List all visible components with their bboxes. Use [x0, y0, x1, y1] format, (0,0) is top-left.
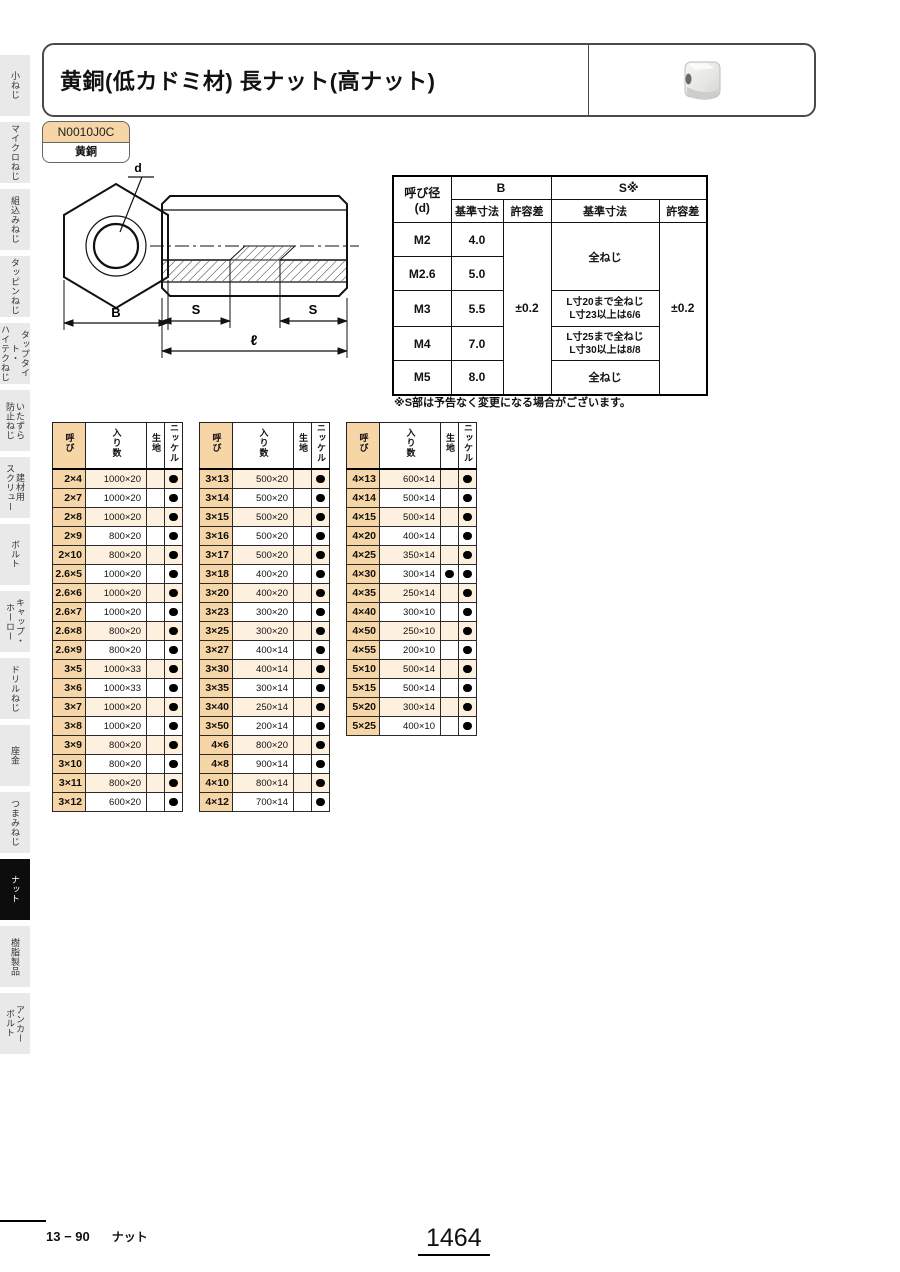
availability-dot [169, 722, 178, 731]
product-row: 3×51000×33 [53, 660, 183, 679]
nickel-cell [165, 546, 183, 565]
qty-cell: 800×20 [86, 546, 147, 565]
qty-cell: 1000×20 [86, 489, 147, 508]
size-cell: 4×30 [347, 565, 380, 584]
plain-cell [441, 679, 459, 698]
sidebar-tab-label: ドリルねじ [10, 665, 20, 713]
plain-cell [147, 698, 165, 717]
availability-dot [169, 627, 178, 636]
size-cell: 2×7 [53, 489, 86, 508]
availability-dot [316, 589, 325, 598]
qty-cell: 400×14 [233, 660, 294, 679]
size-cell: 3×35 [200, 679, 233, 698]
col-header-qty: 入り数 [233, 423, 294, 470]
qty-cell: 200×10 [380, 641, 441, 660]
size-cell: 3×9 [53, 736, 86, 755]
plain-cell [147, 469, 165, 489]
size-cell: 3×30 [200, 660, 233, 679]
sidebar-tab-label: 小ねじ [10, 71, 20, 100]
product-row: 3×30400×14 [200, 660, 330, 679]
qty-cell: 350×14 [380, 546, 441, 565]
dim-label-s-right: S [309, 302, 318, 317]
spec-size-m5: M5 [393, 361, 451, 395]
sidebar-tab-active: ナット [0, 859, 30, 920]
size-cell: 4×13 [347, 469, 380, 489]
nickel-cell [312, 679, 330, 698]
dim-label-d: d [134, 161, 141, 175]
size-cell: 3×23 [200, 603, 233, 622]
product-row: 3×10800×20 [53, 755, 183, 774]
product-row: 2×81000×20 [53, 508, 183, 527]
plain-cell [441, 565, 459, 584]
size-cell: 4×8 [200, 755, 233, 774]
sidebar-tab-label: アンカー ボルト [5, 1005, 25, 1043]
product-code-badge: N0010J0C 黄銅 [42, 121, 130, 163]
plain-cell [441, 660, 459, 679]
nickel-cell [165, 698, 183, 717]
availability-dot [316, 532, 325, 541]
size-cell: 3×11 [53, 774, 86, 793]
size-cell: 3×17 [200, 546, 233, 565]
sidebar-tab-label: キャップ・ ホーロー [5, 598, 25, 646]
product-row: 4×8900×14 [200, 755, 330, 774]
product-row: 3×81000×20 [53, 717, 183, 736]
qty-cell: 1000×33 [86, 679, 147, 698]
sidebar-tab-label: つまみねじ [10, 799, 20, 847]
nickel-cell [165, 584, 183, 603]
col-header-size: 呼び [347, 423, 380, 470]
size-cell: 4×6 [200, 736, 233, 755]
sidebar-tab: マイクロねじ [0, 122, 30, 183]
product-row: 4×50250×10 [347, 622, 477, 641]
product-row: 2.6×8800×20 [53, 622, 183, 641]
availability-dot [316, 646, 325, 655]
nickel-cell [459, 660, 477, 679]
qty-cell: 800×20 [86, 641, 147, 660]
plain-cell [294, 469, 312, 489]
availability-dot [463, 665, 472, 674]
col-header-nickel: ニッケル [312, 423, 330, 470]
spec-s-m5: 全ねじ [551, 361, 659, 395]
availability-dot [169, 513, 178, 522]
qty-cell: 800×20 [233, 736, 294, 755]
size-cell: 3×13 [200, 469, 233, 489]
qty-cell: 1000×20 [86, 565, 147, 584]
availability-dot [463, 627, 472, 636]
availability-dot [316, 684, 325, 693]
footer-section-number: 13 − 90 [46, 1229, 90, 1244]
sidebar-tab: 小ねじ [0, 55, 30, 116]
product-row: 2×10800×20 [53, 546, 183, 565]
page-number: 1464 [418, 1224, 490, 1256]
availability-dot [463, 722, 472, 731]
product-row: 3×20400×20 [200, 584, 330, 603]
qty-cell: 1000×20 [86, 603, 147, 622]
plain-cell [294, 641, 312, 660]
availability-dot [316, 513, 325, 522]
plain-cell [147, 565, 165, 584]
qty-cell: 500×20 [233, 546, 294, 565]
sidebar-tab-label: マイクロねじ [10, 124, 20, 181]
col-header-plain: 生地 [294, 423, 312, 470]
plain-cell [147, 508, 165, 527]
product-row: 3×9800×20 [53, 736, 183, 755]
plain-cell [441, 641, 459, 660]
nickel-cell [165, 717, 183, 736]
nickel-cell [312, 698, 330, 717]
nickel-cell [312, 755, 330, 774]
product-row: 3×27400×14 [200, 641, 330, 660]
product-row: 2×41000×20 [53, 469, 183, 489]
availability-dot [316, 665, 325, 674]
product-row: 4×35250×14 [347, 584, 477, 603]
qty-cell: 1000×20 [86, 717, 147, 736]
sidebar: 小ねじマイクロねじ組込みねじタッピンねじタップタイト・ ハイテクねじいたずら 防… [0, 55, 30, 1060]
spec-header-s: S※ [551, 176, 707, 200]
nickel-cell [459, 622, 477, 641]
availability-dot [463, 570, 472, 579]
availability-dot [169, 779, 178, 788]
product-row: 3×40250×14 [200, 698, 330, 717]
product-row: 5×10500×14 [347, 660, 477, 679]
qty-cell: 600×14 [380, 469, 441, 489]
spec-size-m2: M2 [393, 223, 451, 257]
dim-label-b: B [111, 305, 120, 320]
availability-dot [169, 703, 178, 712]
product-row: 3×23300×20 [200, 603, 330, 622]
plain-cell [441, 717, 459, 736]
size-cell: 3×5 [53, 660, 86, 679]
qty-cell: 300×14 [380, 698, 441, 717]
footer-category: ナット [112, 1230, 148, 1244]
size-cell: 3×8 [53, 717, 86, 736]
availability-dot [316, 760, 325, 769]
size-cell: 3×25 [200, 622, 233, 641]
sidebar-tab-label: 組込みねじ [10, 196, 20, 244]
plain-cell [147, 755, 165, 774]
size-cell: 4×10 [200, 774, 233, 793]
qty-cell: 800×20 [86, 622, 147, 641]
plain-cell [294, 603, 312, 622]
availability-dot [463, 513, 472, 522]
qty-cell: 250×10 [380, 622, 441, 641]
size-cell: 2.6×6 [53, 584, 86, 603]
qty-cell: 300×20 [233, 622, 294, 641]
plain-cell [147, 736, 165, 755]
size-cell: 2.6×9 [53, 641, 86, 660]
availability-dot [169, 589, 178, 598]
nickel-cell [459, 641, 477, 660]
plain-cell [294, 717, 312, 736]
qty-cell: 300×20 [233, 603, 294, 622]
spec-s-m3: L寸20まで全ねじ L寸23以上は6/6 [551, 291, 659, 327]
plain-cell [294, 527, 312, 546]
nickel-cell [312, 641, 330, 660]
nickel-cell [165, 469, 183, 489]
nut-photo [675, 57, 729, 103]
nickel-cell [459, 546, 477, 565]
col-header-nickel: ニッケル [165, 423, 183, 470]
nickel-cell [459, 527, 477, 546]
product-row: 3×71000×20 [53, 698, 183, 717]
header-photo-area [589, 45, 814, 115]
size-cell: 3×15 [200, 508, 233, 527]
availability-dot [169, 665, 178, 674]
qty-cell: 500×14 [380, 679, 441, 698]
qty-cell: 1000×20 [86, 698, 147, 717]
qty-cell: 500×14 [380, 660, 441, 679]
availability-dot [316, 798, 325, 807]
availability-dot [169, 475, 178, 484]
nickel-cell [312, 565, 330, 584]
qty-cell: 250×14 [233, 698, 294, 717]
sidebar-tab-label: 樹脂製品 [10, 938, 20, 976]
nickel-cell [165, 565, 183, 584]
availability-dot [463, 646, 472, 655]
availability-dot [463, 684, 472, 693]
size-cell: 2.6×5 [53, 565, 86, 584]
sidebar-tab: ボルト [0, 524, 30, 585]
technical-drawing: d B [40, 158, 400, 418]
plain-cell [294, 679, 312, 698]
product-row: 3×17500×20 [200, 546, 330, 565]
size-cell: 4×35 [347, 584, 380, 603]
qty-cell: 500×20 [233, 527, 294, 546]
product-row: 3×13500×20 [200, 469, 330, 489]
plain-cell [294, 546, 312, 565]
availability-dot [316, 703, 325, 712]
col-header-qty: 入り数 [86, 423, 147, 470]
spec-s-tolerance: ±0.2 [659, 223, 707, 395]
qty-cell: 500×20 [233, 508, 294, 527]
plain-cell [294, 508, 312, 527]
qty-cell: 800×20 [86, 736, 147, 755]
size-cell: 3×14 [200, 489, 233, 508]
product-row: 2.6×9800×20 [53, 641, 183, 660]
nickel-cell [312, 793, 330, 812]
nickel-cell [312, 736, 330, 755]
size-cell: 3×18 [200, 565, 233, 584]
col-header-plain: 生地 [147, 423, 165, 470]
qty-cell: 400×20 [233, 565, 294, 584]
nickel-cell [312, 660, 330, 679]
plain-cell [294, 660, 312, 679]
nickel-cell [165, 489, 183, 508]
availability-dot [463, 608, 472, 617]
plain-cell [147, 660, 165, 679]
product-row: 2×71000×20 [53, 489, 183, 508]
product-row: 3×61000×33 [53, 679, 183, 698]
size-cell: 2×4 [53, 469, 86, 489]
spec-size-m3: M3 [393, 291, 451, 327]
spec-header-d: 呼び径 (d) [393, 176, 451, 223]
product-row: 4×14500×14 [347, 489, 477, 508]
size-cell: 4×55 [347, 641, 380, 660]
product-row: 2.6×51000×20 [53, 565, 183, 584]
plain-cell [294, 489, 312, 508]
product-row: 3×25300×20 [200, 622, 330, 641]
product-row: 5×15500×14 [347, 679, 477, 698]
sidebar-tab: ドリルねじ [0, 658, 30, 719]
availability-dot [316, 741, 325, 750]
plain-cell [294, 793, 312, 812]
qty-cell: 400×14 [380, 527, 441, 546]
product-row: 4×6800×20 [200, 736, 330, 755]
size-cell: 3×40 [200, 698, 233, 717]
size-cell: 4×20 [347, 527, 380, 546]
sidebar-tab-label: いたずら 防止ねじ [5, 402, 25, 440]
product-row: 3×16500×20 [200, 527, 330, 546]
product-row: 2.6×61000×20 [53, 584, 183, 603]
size-cell: 5×20 [347, 698, 380, 717]
qty-cell: 700×14 [233, 793, 294, 812]
sidebar-tab: タップタイト・ ハイテクねじ [0, 323, 30, 384]
qty-cell: 300×14 [233, 679, 294, 698]
availability-dot [316, 570, 325, 579]
sidebar-tab-label: ナット [10, 875, 20, 904]
nickel-cell [312, 774, 330, 793]
spec-table: 呼び径 (d) B S※ 基準寸法 許容差 基準寸法 許容差 M2 4.0 ±0… [392, 175, 708, 396]
size-cell: 4×15 [347, 508, 380, 527]
side-view: S S ℓ [150, 196, 359, 358]
nickel-cell [165, 755, 183, 774]
size-cell: 2.6×8 [53, 622, 86, 641]
qty-cell: 800×20 [86, 774, 147, 793]
product-row: 4×55200×10 [347, 641, 477, 660]
size-cell: 3×27 [200, 641, 233, 660]
product-table-3: 呼び入り数生地ニッケル4×13600×144×14500×144×15500×1… [346, 422, 477, 736]
availability-dot [445, 570, 454, 579]
product-row: 3×14500×20 [200, 489, 330, 508]
qty-cell: 300×14 [380, 565, 441, 584]
sidebar-tab-label: タッピンねじ [10, 258, 20, 315]
availability-dot [316, 608, 325, 617]
product-row: 5×25400×10 [347, 717, 477, 736]
nickel-cell [312, 717, 330, 736]
qty-cell: 200×14 [233, 717, 294, 736]
nickel-cell [459, 508, 477, 527]
qty-cell: 400×10 [380, 717, 441, 736]
sidebar-tab: 座金 [0, 725, 30, 786]
product-row: 5×20300×14 [347, 698, 477, 717]
qty-cell: 800×20 [86, 527, 147, 546]
nickel-cell [165, 622, 183, 641]
footer-tick-mark [0, 1220, 46, 1222]
nickel-cell [165, 508, 183, 527]
sidebar-tab: アンカー ボルト [0, 993, 30, 1054]
sidebar-tab: タッピンねじ [0, 256, 30, 317]
spec-s-m2-m26: 全ねじ [551, 223, 659, 291]
qty-cell: 500×20 [233, 469, 294, 489]
plain-cell [294, 774, 312, 793]
size-cell: 4×14 [347, 489, 380, 508]
product-row: 4×10800×14 [200, 774, 330, 793]
qty-cell: 1000×20 [86, 469, 147, 489]
qty-cell: 400×14 [233, 641, 294, 660]
nickel-cell [459, 489, 477, 508]
spec-b-m4: 7.0 [451, 327, 503, 361]
plain-cell [147, 793, 165, 812]
size-cell: 3×12 [53, 793, 86, 812]
qty-cell: 1000×20 [86, 584, 147, 603]
qty-cell: 500×14 [380, 489, 441, 508]
product-row: 4×13600×14 [347, 469, 477, 489]
sidebar-tab: 組込みねじ [0, 189, 30, 250]
qty-cell: 900×14 [233, 755, 294, 774]
plain-cell [147, 622, 165, 641]
product-code: N0010J0C [42, 121, 130, 142]
col-header-size: 呼び [53, 423, 86, 470]
size-cell: 3×10 [53, 755, 86, 774]
nickel-cell [165, 527, 183, 546]
plain-cell [147, 527, 165, 546]
header-title-area: 黄銅(低カドミ材) 長ナット(高ナット) [44, 45, 589, 115]
plain-cell [441, 584, 459, 603]
spec-s-m4: L寸25まで全ねじ L寸30以上は8/8 [551, 327, 659, 361]
availability-dot [169, 741, 178, 750]
qty-cell: 1000×33 [86, 660, 147, 679]
sidebar-tab-label: タップタイト・ ハイテクねじ [0, 323, 30, 384]
size-cell: 5×10 [347, 660, 380, 679]
product-row: 4×20400×14 [347, 527, 477, 546]
plain-cell [294, 755, 312, 774]
nickel-cell [312, 489, 330, 508]
spec-subheader-s-basic: 基準寸法 [551, 200, 659, 223]
availability-dot [316, 627, 325, 636]
product-row: 3×18400×20 [200, 565, 330, 584]
size-cell: 2×8 [53, 508, 86, 527]
qty-cell: 500×20 [233, 489, 294, 508]
size-cell: 4×12 [200, 793, 233, 812]
sidebar-tab: キャップ・ ホーロー [0, 591, 30, 652]
sidebar-tab: つまみねじ [0, 792, 30, 853]
availability-dot [169, 608, 178, 617]
plain-cell [147, 641, 165, 660]
sidebar-tab: いたずら 防止ねじ [0, 390, 30, 451]
plain-cell [441, 508, 459, 527]
product-tables: 呼び入り数生地ニッケル2×41000×202×71000×202×81000×2… [52, 422, 477, 812]
size-cell: 4×25 [347, 546, 380, 565]
nickel-cell [459, 698, 477, 717]
product-row: 4×15500×14 [347, 508, 477, 527]
plain-cell [441, 546, 459, 565]
plain-cell [147, 774, 165, 793]
availability-dot [169, 570, 178, 579]
catalog-page: 小ねじマイクロねじ組込みねじタッピンねじタップタイト・ ハイテクねじいたずら 防… [0, 0, 900, 1272]
qty-cell: 600×20 [86, 793, 147, 812]
nickel-cell [165, 736, 183, 755]
size-cell: 2.6×7 [53, 603, 86, 622]
product-row: 3×50200×14 [200, 717, 330, 736]
plain-cell [147, 717, 165, 736]
nickel-cell [165, 641, 183, 660]
nickel-cell [165, 793, 183, 812]
plain-cell [441, 527, 459, 546]
availability-dot [169, 684, 178, 693]
dim-label-length: ℓ [251, 332, 258, 348]
availability-dot [169, 532, 178, 541]
header-box: 黄銅(低カドミ材) 長ナット(高ナット) [42, 43, 816, 117]
product-row: 2×9800×20 [53, 527, 183, 546]
size-cell: 3×7 [53, 698, 86, 717]
nickel-cell [165, 679, 183, 698]
availability-dot [463, 551, 472, 560]
spec-subheader-b-basic: 基準寸法 [451, 200, 503, 223]
nickel-cell [165, 774, 183, 793]
col-header-nickel: ニッケル [459, 423, 477, 470]
availability-dot [316, 494, 325, 503]
page-title: 黄銅(低カドミ材) 長ナット(高ナット) [60, 64, 435, 96]
